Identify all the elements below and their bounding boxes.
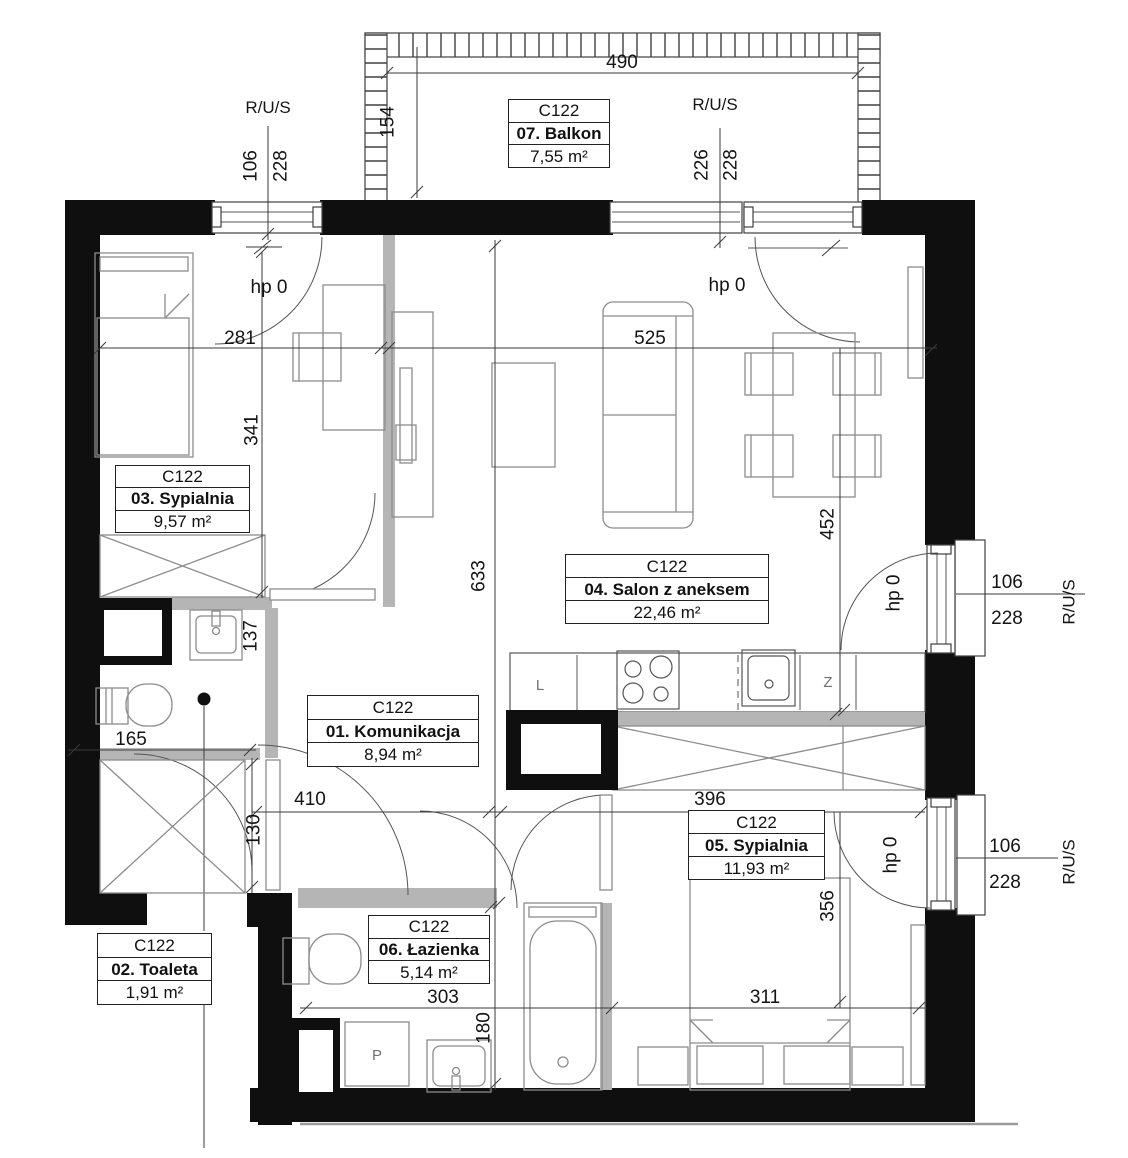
built-in-wardrobe-kitchen [613,726,925,790]
rus-label-right-bottom: R/U/S [1060,839,1079,884]
door-leaf-bedroom3 [270,589,375,600]
room-label-01-komunikacja: C122 01. Komunikacja 8,94 m² [307,695,479,767]
room-area: 7,55 m² [509,145,609,167]
dim-balcony-depth: 154 [378,106,399,138]
room-label-05-sypialnia: C122 05. Sypialnia 11,93 m² [688,810,825,880]
room-area: 1,91 m² [98,981,211,1004]
door-arc-bedroom5 [511,795,606,890]
nightstand [852,1047,903,1085]
hp-label-salon-window: hp 0 [884,575,905,612]
dim-room5-width: 311 [750,987,780,1008]
furniture-salon [392,267,923,528]
hp-label-salon: hp 0 [709,275,746,296]
room-area: 9,57 m² [116,511,249,532]
dim-balcony-width: 490 [606,52,638,73]
furniture-bedroom-05 [638,878,925,1090]
dim-win-bot-h: 228 [989,872,1021,893]
room-name: 05. Sypialnia [689,833,824,857]
dim-win-left-w: 106 [241,150,262,182]
pillow [697,1046,763,1084]
dim-salon-width: 525 [634,328,666,349]
desk [323,285,385,430]
hp-label-bedroom5: hp 0 [881,837,902,874]
dining-chairs [745,353,881,477]
room-label-02-toaleta: C122 02. Toaleta 1,91 m² [97,933,212,1005]
room-name: 04. Salon z aneksem [566,577,768,601]
room-area: 22,46 m² [566,601,768,623]
door-arc-toilet [134,754,252,872]
door-leaf-bedroom5 [600,795,612,890]
balcony-door-salon-window [744,202,862,233]
dishwasher-letter: Z [823,674,832,691]
dim-core-height: 633 [469,560,490,592]
dim-toilet-width: 165 [115,729,147,750]
kitchen-counter [510,653,925,712]
wardrobe-hall [100,760,245,893]
rus-label-right-mid: R/U/S [1060,579,1079,624]
room-code: C122 [369,916,489,938]
dim-balcony-door-w: 226 [692,149,713,181]
room-name: 07. Balkon [509,122,609,146]
furniture-toilet [96,610,245,1148]
room-name: 02. Toaleta [98,957,211,982]
room-code: C122 [689,811,824,833]
dim-salon-depth: 452 [818,508,839,540]
room-code: C122 [308,696,478,719]
washbasin-toilet [190,610,242,660]
dim-basin-wall: 137 [241,620,262,652]
hp-label-bedroom3: hp 0 [251,277,288,298]
wc-bathroom [283,934,361,984]
pillow [784,1046,850,1084]
room-label-04-salon: C122 04. Salon z aneksem 22,46 m² [565,554,769,624]
bathtub [524,903,602,1090]
shafts [95,598,340,1122]
door-arc-bedroom3 [270,493,375,598]
furniture-bedroom-03 [95,253,385,597]
fridge-letter: L [536,677,544,694]
room-label-07-balkon: C122 07. Balkon 7,55 m² [508,99,610,168]
wc-toilet [96,684,172,726]
room-code: C122 [509,100,609,122]
room-code: C122 [116,466,249,487]
washbasin-bathroom [427,1040,491,1092]
tv-cabinet [392,312,433,517]
dining-table [773,333,855,497]
dim-win-mid-h: 228 [991,608,1023,629]
nightstand [638,1047,688,1085]
dim-kitchen-width: 396 [694,789,726,810]
room-label-06-lazienka: C122 06. Łazienka 5,14 m² [368,915,490,984]
dim-bath-depth: 180 [474,1012,495,1044]
kitchen [506,650,925,790]
dim-win-bot-w: 106 [989,836,1021,857]
bed-single [95,253,193,457]
balcony-door-bedroom3-window [212,202,322,233]
dim-hall-depth: 130 [244,814,265,846]
rus-label-balcony: R/U/S [692,95,737,114]
label-leader-dot [198,693,211,706]
dim-room3-depth: 341 [242,414,263,446]
room-area: 11,93 m² [689,857,824,879]
room-label-03-sypialnia: C122 03. Sypialnia 9,57 m² [115,465,250,533]
salon-side-window [927,540,985,656]
dim-room5-depth: 356 [818,890,839,922]
room-code: C122 [98,934,211,957]
wardrobe-bedroom3 [100,535,265,597]
floor-plan: 490 154 R/U/S 226 228 R/U/S 106 228 hp 0… [0,0,1128,1158]
dim-bath-width: 303 [427,987,459,1008]
door-arc-salon-balcony [755,237,860,342]
dim-balcony-door-h: 228 [721,149,742,181]
room-name: 06. Łazienka [369,938,489,962]
room-name: 03. Sypialnia [116,487,249,510]
bedroom5-window [927,795,985,915]
wall-shelf [908,267,923,378]
washer-letter: P [372,1047,382,1064]
dim-win-mid-w: 106 [991,572,1023,593]
rus-label-left: R/U/S [245,98,290,117]
wall-cabinet [911,925,925,1085]
room-code: C122 [566,555,768,577]
dim-room3-width: 281 [224,328,256,349]
room-area: 5,14 m² [369,961,489,983]
salon-window [610,202,742,233]
coffee-table [492,363,555,467]
desk-chair [293,333,341,381]
dim-win-left-h: 228 [271,150,292,182]
dim-hall-width: 410 [294,789,326,810]
room-area: 8,94 m² [308,743,478,766]
door-leaf-toilet [266,760,280,890]
room-name: 01. Komunikacja [308,719,478,744]
